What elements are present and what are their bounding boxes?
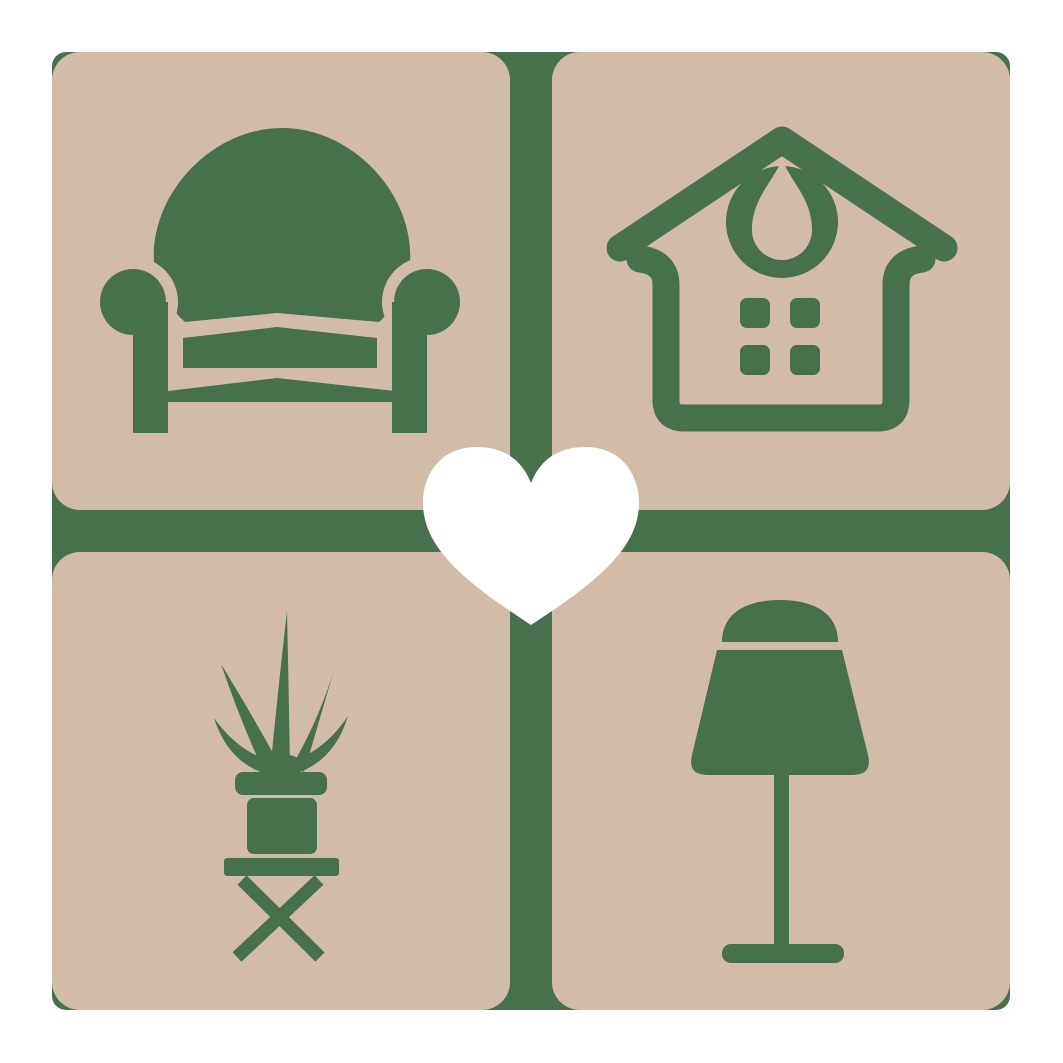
lamp-icon — [552, 552, 1010, 1010]
lamp-shade-cap — [722, 600, 838, 642]
lamp-shade-body — [691, 650, 869, 775]
stool-legs — [237, 880, 320, 957]
plant-foliage-base — [258, 754, 302, 774]
house-window-pane — [740, 345, 770, 375]
house-icon — [552, 52, 1010, 510]
armchair-seat-cushion — [183, 327, 377, 368]
plant-pot-rim — [235, 772, 327, 795]
house-window-pane — [790, 345, 820, 375]
logo — [52, 52, 1010, 1010]
tile-armchair — [52, 52, 510, 510]
armchair-backrest — [154, 128, 411, 322]
armchair-front-rail — [168, 378, 395, 402]
armchair-leg-left — [133, 302, 168, 433]
house-window-pane — [740, 298, 770, 328]
tile-lamp — [552, 552, 1010, 1010]
tile-potted-plant — [52, 552, 510, 1010]
lamp-pole — [774, 775, 789, 950]
plant-leaf-center — [270, 611, 290, 772]
armchair-icon — [52, 52, 510, 510]
potted-plant-icon — [52, 552, 510, 1010]
stool-seat — [224, 858, 339, 876]
house-walls — [640, 259, 922, 418]
lamp-base — [722, 944, 844, 963]
house-window-pane — [790, 298, 820, 328]
tile-house — [552, 52, 1010, 510]
armchair-leg-right — [392, 302, 427, 433]
plant-pot-body — [247, 798, 317, 854]
